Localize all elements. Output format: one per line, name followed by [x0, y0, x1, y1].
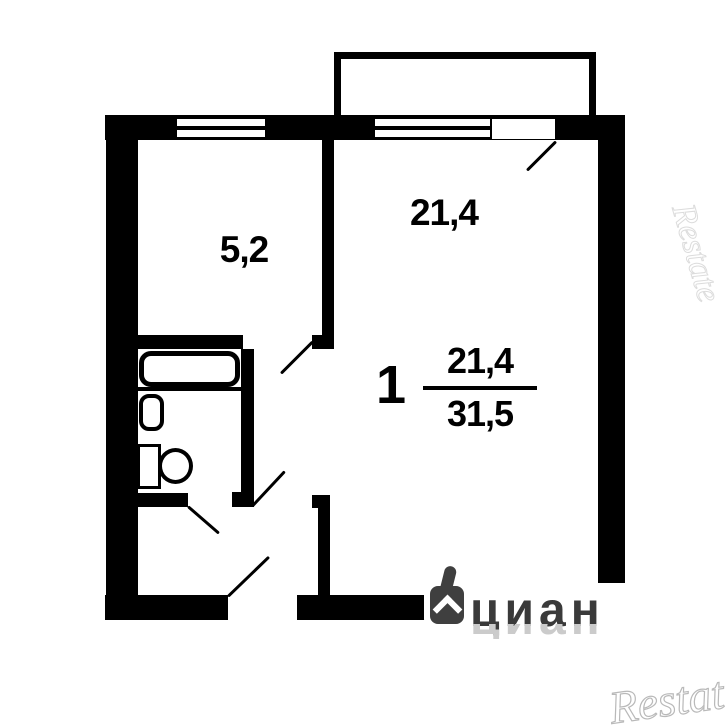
wall-right [598, 115, 625, 620]
kitchen-area-label: 5,2 [196, 231, 292, 268]
bathtub-icon [139, 351, 240, 387]
wall-bathroom-bottom [137, 493, 188, 507]
wall-bathroom-right [241, 349, 254, 492]
sink-icon [139, 394, 164, 431]
total-area-label: 31,5 [423, 396, 537, 432]
cian-logo-icon [430, 586, 464, 624]
wall-hall-living-foot [312, 495, 330, 508]
living-window-mullion [375, 126, 490, 130]
living-room-area-label: 21,4 [394, 194, 494, 231]
living-area-label: 21,4 [423, 343, 537, 379]
wc-door-swing [251, 470, 286, 507]
cian-watermark-ghost: циан [470, 624, 670, 639]
wall-kitchen-living-foot [312, 335, 334, 349]
toilet-bowl-icon [158, 448, 193, 484]
wall-bath-wc-divider [138, 387, 241, 391]
wall-left [106, 115, 138, 620]
wall-kitchen-living [322, 140, 334, 335]
bathroom-door-swing [187, 505, 220, 534]
restate-watermark-top: Restate [663, 200, 725, 307]
wall-hall-living [318, 508, 330, 600]
room-count-label: 1 [376, 358, 406, 412]
balcony-door-opening [492, 119, 555, 139]
kitchen-door-swing [280, 341, 314, 375]
entrance-door-swing [227, 556, 270, 598]
balcony-door-swing [526, 140, 557, 171]
wall-bathroom-top [137, 335, 243, 349]
floor-plan: 5,2 21,4 1 21,4 31,5 циан циан Restate R… [0, 0, 725, 725]
fraction-bar [423, 386, 537, 390]
restate-watermark-bottom: Restate [606, 663, 725, 725]
kitchen-window-mullion [177, 126, 265, 130]
wall-bottom-left [105, 595, 228, 620]
balcony-outline [334, 52, 596, 116]
